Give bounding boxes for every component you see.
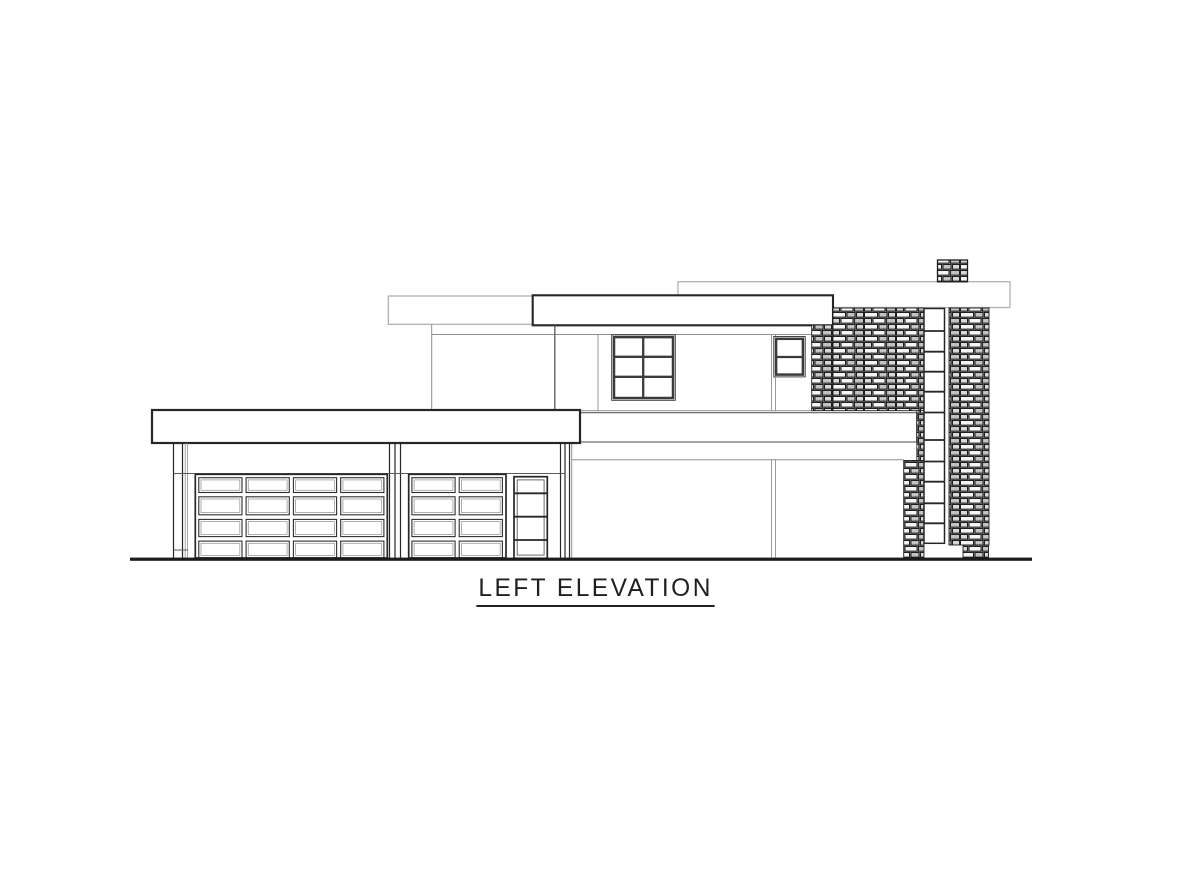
stone-chimney-base	[963, 545, 989, 558]
second-story-window-small	[774, 337, 805, 377]
garage-door-2	[409, 474, 506, 558]
second-story-fascia	[533, 295, 833, 325]
garage-sidelite-window	[514, 477, 547, 559]
window-ladder	[924, 309, 945, 544]
chimney-cap	[938, 260, 968, 282]
drawing-title: LEFT ELEVATION	[474, 576, 706, 607]
second-story-window-large	[612, 335, 676, 401]
stone-chimney-column	[949, 308, 989, 545]
elevation-drawing	[0, 0, 1200, 880]
garage	[152, 410, 580, 558]
elevation-sheet: LEFT ELEVATION	[0, 0, 1200, 880]
ground-line	[130, 558, 1032, 561]
first-floor-fascia	[580, 413, 917, 442]
stone-wall-upper-right	[833, 308, 924, 411]
first-floor	[572, 411, 924, 558]
stone-strip-mid	[917, 411, 924, 461]
stone-wall-upper-left	[812, 325, 833, 411]
roof-band-left-light	[388, 296, 533, 324]
garage-door-1	[195, 474, 387, 558]
garage-fascia	[152, 410, 580, 443]
drawing-title-text: LEFT ELEVATION	[476, 576, 714, 607]
stone-column-lower	[904, 461, 924, 558]
